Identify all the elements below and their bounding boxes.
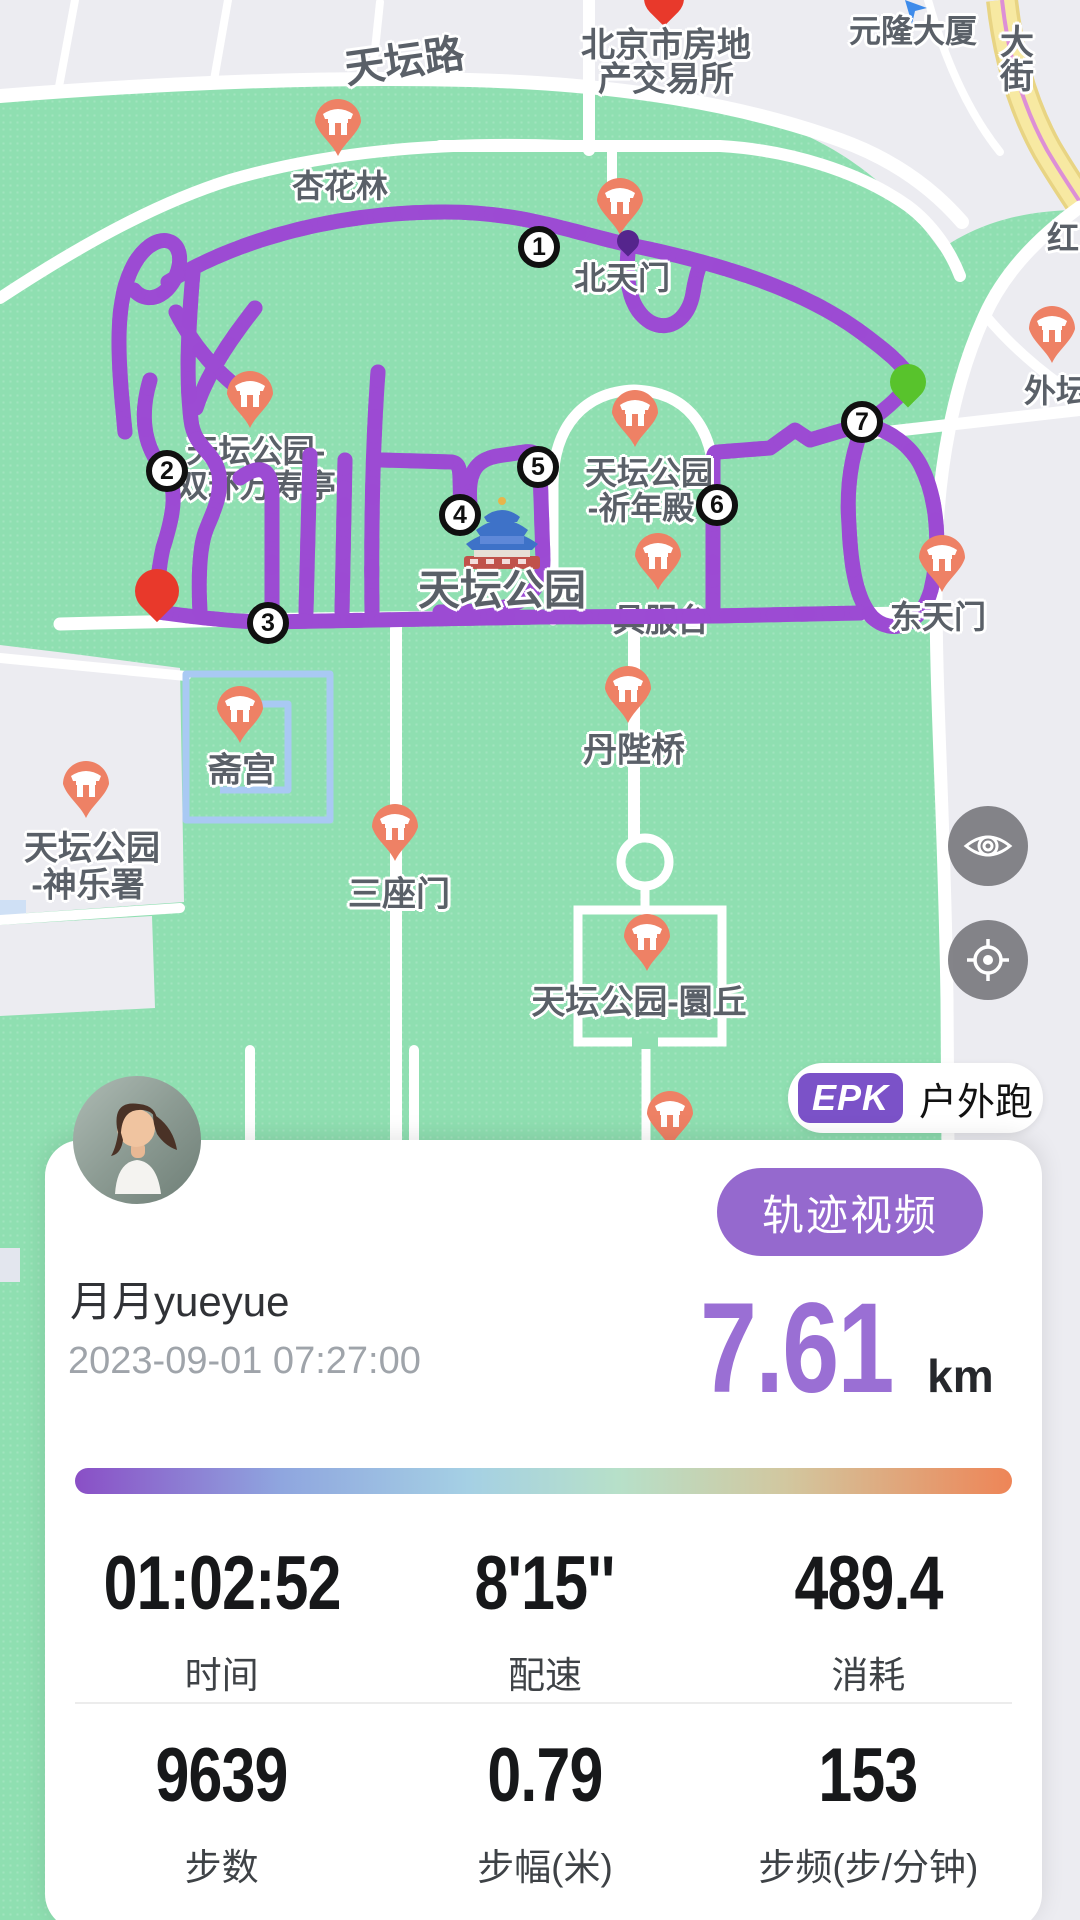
waypoint-marker-7: 7 bbox=[841, 401, 883, 443]
poi-pin-杏花林 bbox=[312, 92, 364, 158]
waypoint-marker-2: 2 bbox=[146, 450, 188, 492]
epk-logo: EPK bbox=[798, 1073, 903, 1123]
poi-pin-外坛 bbox=[1026, 299, 1078, 365]
waypoint-marker-1: 1 bbox=[518, 226, 560, 268]
pagoda-pin-icon bbox=[602, 659, 654, 725]
poi-pin-天坛公园-圜丘 bbox=[621, 907, 673, 973]
stat-步幅(米): 0.79步幅(米) bbox=[383, 1732, 706, 1891]
stat-value: 489.4 bbox=[794, 1540, 942, 1627]
waypoint-marker-6: 6 bbox=[696, 484, 738, 526]
pagoda-pin-icon bbox=[632, 526, 684, 592]
poi-pin-天坛公园-双环万寿亭 bbox=[224, 364, 276, 430]
stat-步数: 9639步数 bbox=[60, 1732, 383, 1891]
eye-icon bbox=[962, 820, 1014, 872]
run-datetime: 2023-09-01 07:27:00 bbox=[68, 1340, 421, 1383]
stat-value: 9639 bbox=[156, 1732, 288, 1819]
app-screen: 天坛公园-双环万寿亭具服台 天坛路北京市房地产交 bbox=[0, 0, 1080, 1920]
avatar-image bbox=[73, 1076, 201, 1204]
stat-label: 步数 bbox=[60, 1837, 383, 1891]
locate-button[interactable] bbox=[948, 920, 1028, 1000]
direction-arrow-icon bbox=[905, 0, 927, 24]
pace-gradient-bar bbox=[75, 1468, 1012, 1494]
poi-pin-东天门 bbox=[916, 528, 968, 594]
stat-label: 配速 bbox=[383, 1645, 706, 1699]
stat-消耗: 489.4消耗 bbox=[707, 1540, 1030, 1699]
stat-配速: 8'15''配速 bbox=[383, 1540, 706, 1699]
pagoda-pin-icon bbox=[369, 797, 421, 863]
pagoda-pin-icon bbox=[214, 679, 266, 745]
pagoda-pin-icon bbox=[609, 383, 661, 449]
distance-total: 7.61 km bbox=[700, 1275, 1000, 1422]
poi-pin-斋宫 bbox=[214, 679, 266, 745]
locate-icon bbox=[962, 934, 1014, 986]
eye-toggle-button[interactable] bbox=[948, 806, 1028, 886]
poi-pin-天坛公园-祈年殿 bbox=[609, 383, 661, 449]
stat-value: 01:02:52 bbox=[103, 1540, 340, 1627]
distance-unit: km bbox=[927, 1349, 993, 1403]
stat-value: 0.79 bbox=[487, 1732, 602, 1819]
pagoda-pin-icon bbox=[312, 92, 364, 158]
poi-pin-北天门 bbox=[594, 171, 646, 237]
pagoda-pin-icon bbox=[1026, 299, 1078, 365]
stat-label: 时间 bbox=[60, 1645, 383, 1699]
stats-divider bbox=[75, 1702, 1012, 1704]
poi-pin-三座门 bbox=[369, 797, 421, 863]
stats-row-2: 9639步数0.79步幅(米)153步频(步/分钟) bbox=[60, 1732, 1030, 1891]
stat-时间: 01:02:52时间 bbox=[60, 1540, 383, 1699]
waypoint-marker-3: 3 bbox=[247, 602, 289, 644]
stat-label: 步幅(米) bbox=[383, 1837, 706, 1891]
stat-label: 步频(步/分钟) bbox=[707, 1837, 1030, 1891]
waypoint-marker-4: 4 bbox=[439, 494, 481, 536]
avatar[interactable] bbox=[73, 1076, 201, 1204]
track-video-button[interactable]: 轨迹视频 bbox=[717, 1168, 983, 1256]
pagoda-pin-icon bbox=[621, 907, 673, 973]
pagoda-pin-icon bbox=[916, 528, 968, 594]
pagoda-pin-icon bbox=[60, 754, 112, 820]
poi-pin-丹陛桥 bbox=[602, 659, 654, 725]
user-name: 月月yueyue bbox=[70, 1268, 289, 1329]
poi-pin-具服台 bbox=[632, 526, 684, 592]
distance-value: 7.61 bbox=[700, 1275, 893, 1422]
stats-row-1: 01:02:52时间8'15''配速489.4消耗 bbox=[60, 1540, 1030, 1699]
waypoint-marker-5: 5 bbox=[517, 446, 559, 488]
stat-label: 消耗 bbox=[707, 1645, 1030, 1699]
pagoda-pin-icon bbox=[224, 364, 276, 430]
activity-type-badge: EPK 户外跑 bbox=[788, 1063, 1043, 1133]
stat-value: 8'15'' bbox=[475, 1540, 615, 1627]
activity-type-label: 户外跑 bbox=[919, 1071, 1033, 1126]
stat-value: 153 bbox=[819, 1732, 918, 1819]
stat-步频(步/分钟): 153步频(步/分钟) bbox=[707, 1732, 1030, 1891]
pagoda-pin-icon bbox=[594, 171, 646, 237]
poi-pin-天坛公园-神乐署 bbox=[60, 754, 112, 820]
